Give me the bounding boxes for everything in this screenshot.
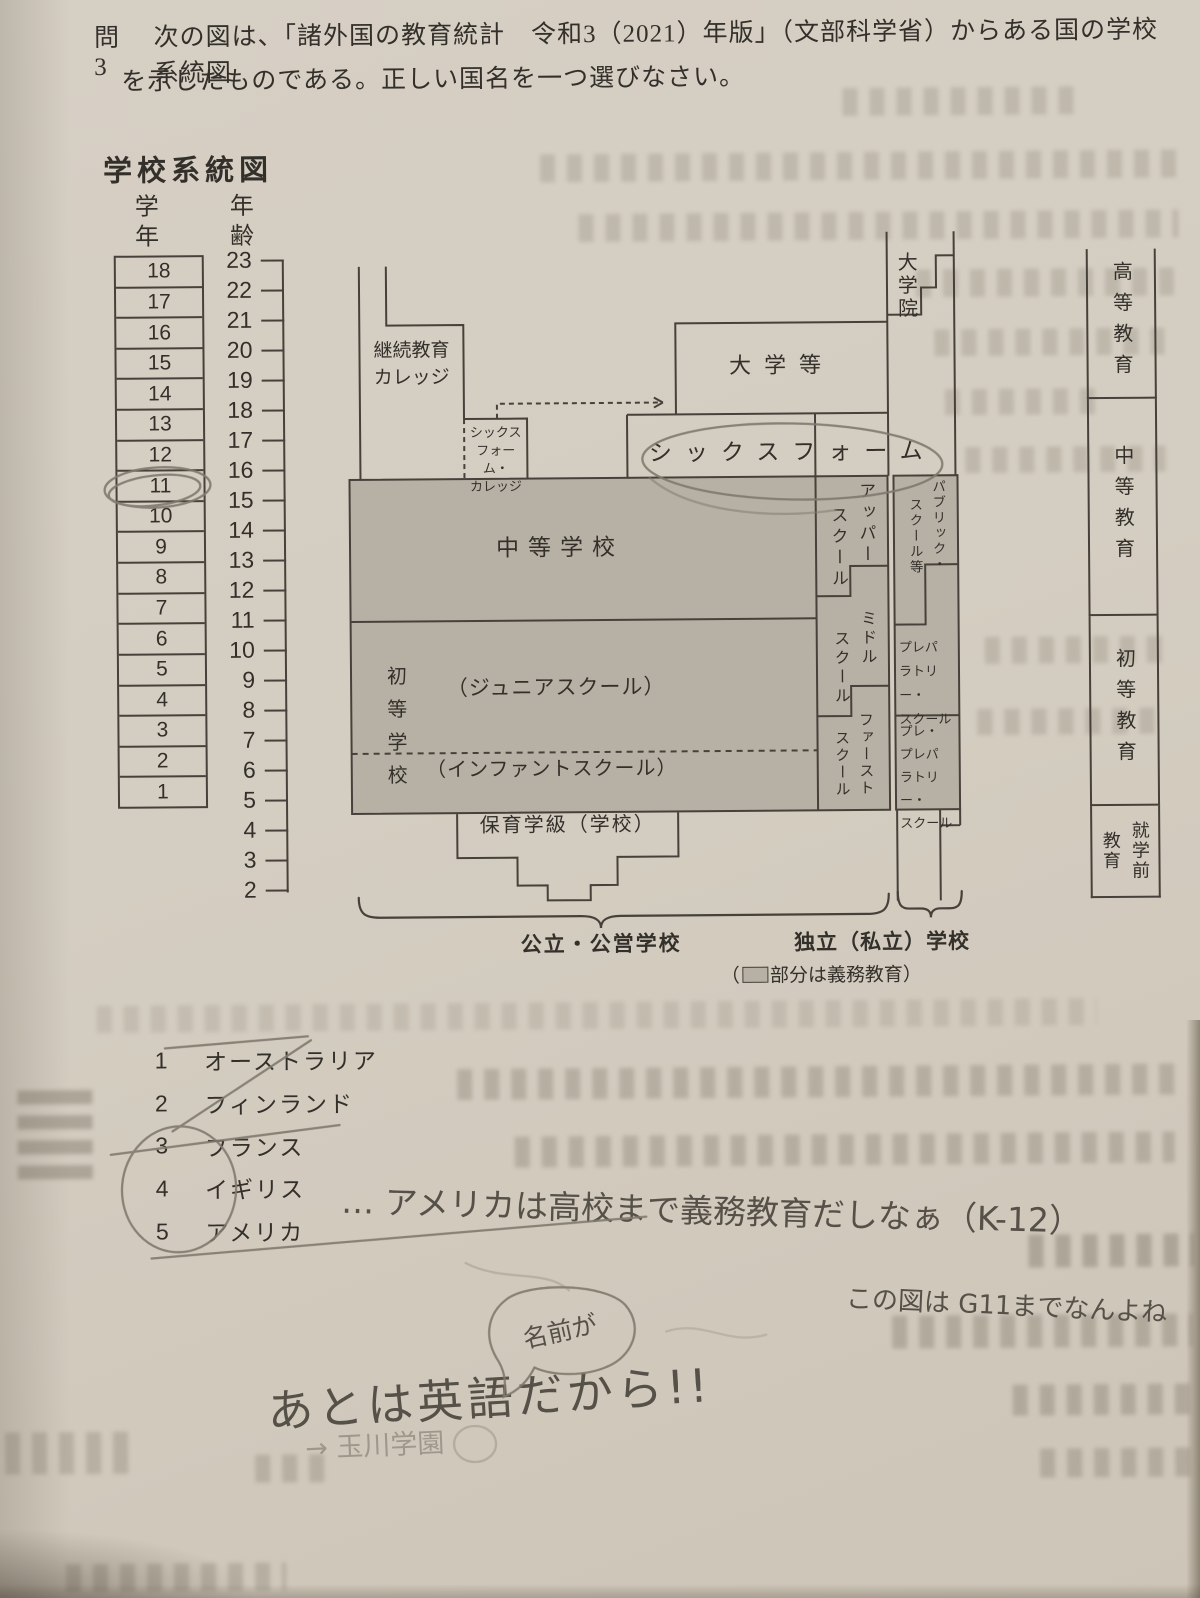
first-school-label-col2: スクール xyxy=(831,730,853,808)
infant-school-label: （インファントスクール） xyxy=(362,755,742,784)
grade-box: 8 xyxy=(118,563,204,594)
speech-bubble-text: 名前が xyxy=(519,1305,600,1356)
bleedthrough-smudge xyxy=(66,1562,286,1592)
grad-school-label: 大学院 xyxy=(892,251,919,320)
grade-box: 5 xyxy=(119,655,205,686)
bleedthrough-smudge xyxy=(97,998,1097,1033)
first-school-label: ファースト スクール xyxy=(819,712,888,809)
bleedthrough-smudge xyxy=(17,1084,93,1180)
option-1: 1オーストラリア xyxy=(144,1036,564,1082)
grade-box: 15 xyxy=(116,349,202,380)
grade-box: 17 xyxy=(116,288,202,319)
bleedthrough-smudge xyxy=(1040,1447,1200,1477)
secondary-school-label: 中等学校 xyxy=(350,531,770,565)
age-tick: 20 xyxy=(206,350,284,351)
handwritten-memo-g11: この図は G11までなんよね xyxy=(845,1278,1200,1332)
grade-box: 1 xyxy=(120,777,206,806)
age-tick: 2 xyxy=(211,890,289,891)
age-tick: 19 xyxy=(207,380,285,381)
grade-box: 16 xyxy=(116,318,202,349)
gray-swatch-icon xyxy=(742,967,768,983)
grade-box: 7 xyxy=(118,594,204,625)
first-school-label-col1: ファースト xyxy=(855,712,877,808)
option-label: アメリカ xyxy=(205,1213,304,1248)
sixth-form-college-label: シックス フォーム・ カレッジ xyxy=(464,424,528,496)
option-number: 1 xyxy=(144,1047,180,1074)
age-tick: 5 xyxy=(210,800,288,801)
stage-primary-education-label: 初等教育 xyxy=(1109,648,1139,772)
pre-prep-school-label: プレ・ プレパ ラトリー・ スクール xyxy=(899,719,958,834)
preschool-label-col1: 就学前 xyxy=(1127,821,1153,881)
option-label: フィンランド xyxy=(204,1085,354,1120)
bleedthrough-smudge xyxy=(1013,1383,1193,1415)
age-tick: 6 xyxy=(210,770,288,771)
age-tick: 9 xyxy=(209,680,287,681)
sixth-form-label: シックスフォーム xyxy=(629,435,955,468)
stage-higher-education-label: 高等教育 xyxy=(1106,261,1136,385)
option-label: オーストラリア xyxy=(204,1042,378,1077)
note-prefix: （ xyxy=(721,966,740,987)
bleedthrough-smudge xyxy=(540,149,1180,182)
public-sector-label: 公立・公営学校 xyxy=(401,926,801,959)
grade-box: 3 xyxy=(119,716,205,747)
option-3: 3フランス xyxy=(145,1122,565,1168)
option-number: 5 xyxy=(145,1218,181,1245)
grade-box: 18 xyxy=(116,257,202,288)
private-sector-brace xyxy=(898,891,962,918)
bleedthrough-smudge xyxy=(945,388,1105,415)
option-2: 2フィンランド xyxy=(144,1079,564,1125)
age-tick: 18 xyxy=(207,410,285,411)
pencil-circle-tamagawa xyxy=(454,1426,496,1462)
preschool-label-col2: 教育 xyxy=(1098,831,1124,871)
age-tick: 3 xyxy=(210,860,288,861)
grade-box: 12 xyxy=(117,441,203,472)
grade-box: 13 xyxy=(117,410,203,441)
grade-box: 14 xyxy=(117,380,203,411)
stage-primary-education: 初等教育 xyxy=(1089,616,1160,807)
compulsory-note: （部分は義務教育） xyxy=(661,959,981,989)
age-axis-header: 年齢 xyxy=(221,193,256,253)
grade-box: 4 xyxy=(119,686,205,717)
fe-college-label: 継続教育 カレッジ xyxy=(359,337,463,392)
stage-preschool-education-label: 就学前 教育 xyxy=(1098,821,1153,881)
age-tick: 12 xyxy=(208,590,286,591)
option-label: イギリス xyxy=(205,1171,305,1206)
option-number: 4 xyxy=(145,1175,181,1202)
bleedthrough-smudge xyxy=(457,1063,1177,1100)
option-label: フランス xyxy=(205,1128,305,1163)
handwritten-memo-tamagawa: → 玉川学園 xyxy=(304,1421,445,1466)
paper-sheet: 問3 次の図は、「諸外国の教育統計 令和3（2021）年版」（文部科学省）からあ… xyxy=(0,0,1200,1598)
age-tick: 4 xyxy=(210,830,288,831)
age-tick: 14 xyxy=(208,530,286,531)
upper-school-label-col1: アッパー xyxy=(853,482,879,612)
grade-box: 11 xyxy=(117,471,203,502)
age-tick: 10 xyxy=(209,650,287,651)
middle-school-label-col1: ミドル xyxy=(854,610,879,715)
note-suffix: 部分は義務教育） xyxy=(770,964,922,986)
bleedthrough-smudge xyxy=(5,1432,135,1475)
public-school-label-col1: パブリック・ xyxy=(927,479,948,614)
bleedthrough-smudge xyxy=(515,1131,1175,1167)
prep-school-label: プレパ ラトリー・ スクール xyxy=(899,635,958,731)
grade-box: 6 xyxy=(119,624,205,655)
middle-school-label-col2: スクール xyxy=(827,630,852,715)
age-scale: 232221201918171615141312111098765432 xyxy=(206,260,289,893)
university-label: 大学等 xyxy=(675,350,887,381)
age-tick: 13 xyxy=(208,560,286,561)
question-line-2: を示したものである。正しい国名を一つ選びなさい。 xyxy=(121,54,1121,98)
age-tick: 11 xyxy=(209,620,287,621)
stage-preschool-education: 就学前 教育 xyxy=(1090,806,1161,899)
age-tick: 7 xyxy=(210,740,288,741)
public-school-label-col2: スクール等 xyxy=(904,497,925,614)
age-tick: 23 xyxy=(206,260,284,261)
age-tick: 21 xyxy=(206,320,284,321)
middle-school-label: ミドル スクール xyxy=(819,610,888,716)
grade-axis-header: 学年 xyxy=(126,193,161,253)
option-number: 2 xyxy=(144,1090,180,1117)
scanned-exam-page: 問3 次の図は、「諸外国の教育統計 令和3（2021）年版」（文部科学省）からあ… xyxy=(0,0,1200,1598)
stage-secondary-education-label: 中等教育 xyxy=(1108,444,1138,568)
bleedthrough-smudge xyxy=(578,209,1178,242)
upper-school-label-col2: スクール xyxy=(825,506,851,612)
age-tick: 22 xyxy=(206,290,284,291)
grade-column: 181716151413121110987654321 xyxy=(114,255,208,809)
figure-title: 学校系統図 xyxy=(103,147,273,190)
public-sector-brace xyxy=(359,894,889,930)
age-tick: 15 xyxy=(208,500,286,501)
nursery-label: 保育学級（学校） xyxy=(457,811,678,839)
stage-higher-education: 高等教育 xyxy=(1086,249,1157,400)
junior-school-label: （ジュニアスクール） xyxy=(371,673,741,704)
dashed-progression-arrow xyxy=(497,402,663,418)
grade-box: 2 xyxy=(120,747,206,778)
grade-box: 10 xyxy=(118,502,204,533)
age-tick: 17 xyxy=(207,440,285,441)
option-number: 3 xyxy=(145,1133,181,1160)
public-school-label: パブリック・ スクール等 xyxy=(895,479,958,614)
stage-secondary-education: 中等教育 xyxy=(1087,399,1159,617)
private-sector-label: 独立（私立）学校 xyxy=(794,925,970,956)
grade-box: 9 xyxy=(118,533,204,564)
upper-school-label: アッパー スクール xyxy=(818,482,887,613)
age-tick: 8 xyxy=(209,710,287,711)
age-tick: 16 xyxy=(207,470,285,471)
